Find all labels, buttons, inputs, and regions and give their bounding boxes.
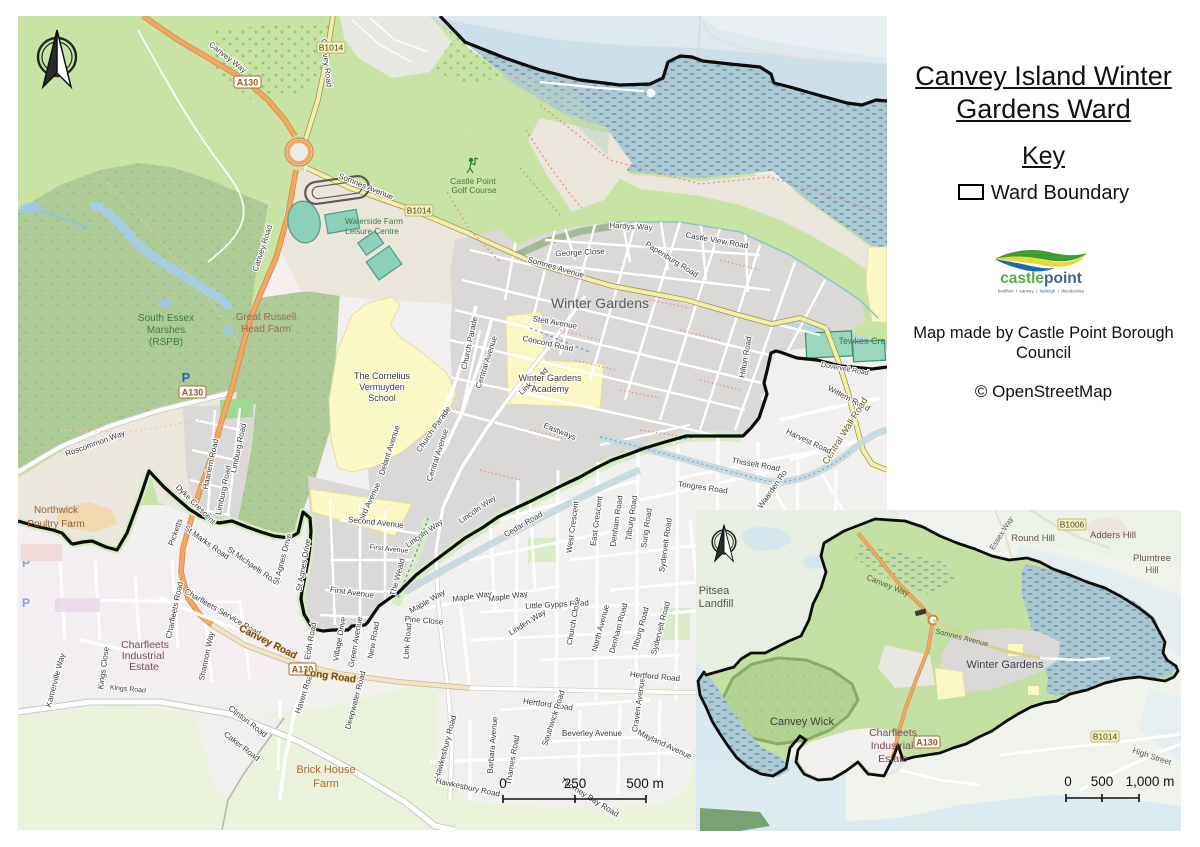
svg-text:(RSPB): (RSPB) bbox=[149, 337, 183, 348]
svg-text:Head Farm: Head Farm bbox=[241, 324, 291, 335]
svg-text:Leisure Centre: Leisure Centre bbox=[345, 227, 399, 236]
svg-text:B1006: B1006 bbox=[1060, 520, 1085, 530]
svg-text:Round Hill: Round Hill bbox=[1011, 533, 1055, 544]
svg-text:Marshes: Marshes bbox=[147, 325, 185, 336]
svg-text:Plumtree: Plumtree bbox=[1133, 553, 1171, 564]
svg-text:0: 0 bbox=[1064, 774, 1072, 789]
svg-text:Pitsea: Pitsea bbox=[699, 585, 730, 597]
svg-text:Landfill: Landfill bbox=[699, 598, 734, 610]
svg-text:B1014: B1014 bbox=[407, 206, 432, 216]
svg-text:Golf Course: Golf Course bbox=[451, 185, 497, 195]
svg-text:Beverley Avenue: Beverley Avenue bbox=[562, 729, 622, 738]
svg-text:Estate: Estate bbox=[129, 661, 159, 673]
svg-text:A130: A130 bbox=[916, 738, 938, 748]
svg-text:P: P bbox=[22, 596, 30, 610]
svg-text:P: P bbox=[182, 370, 191, 385]
svg-text:Poultry Farm: Poultry Farm bbox=[27, 519, 84, 530]
svg-text:1,000 m: 1,000 m bbox=[1126, 774, 1175, 789]
svg-text:Industrial: Industrial bbox=[871, 740, 914, 752]
svg-text:Adders Hill: Adders Hill bbox=[1090, 530, 1136, 541]
svg-text:B1014: B1014 bbox=[1093, 732, 1118, 742]
svg-text:castlepoint: castlepoint bbox=[1000, 270, 1082, 287]
svg-text:Great Russell: Great Russell bbox=[236, 312, 297, 323]
svg-text:Winter Gardens: Winter Gardens bbox=[966, 659, 1044, 671]
svg-text:Vermuyden: Vermuyden bbox=[359, 382, 405, 392]
svg-text:Charfleets: Charfleets bbox=[869, 727, 917, 739]
svg-text:benfleet I canvey I harlei: benfleet I canvey I harleigh I thundersl… bbox=[998, 289, 1085, 294]
svg-text:0: 0 bbox=[499, 776, 507, 791]
svg-text:A130: A130 bbox=[182, 388, 204, 398]
svg-text:Farm: Farm bbox=[313, 778, 339, 790]
svg-text:Canvey Wick: Canvey Wick bbox=[770, 716, 835, 728]
svg-text:Northwick: Northwick bbox=[34, 505, 79, 516]
svg-text:Estate: Estate bbox=[878, 753, 908, 765]
svg-text:South Essex: South Essex bbox=[138, 313, 194, 324]
svg-text:Winter Gardens: Winter Gardens bbox=[551, 295, 649, 311]
svg-text:500: 500 bbox=[1091, 774, 1114, 789]
svg-text:A130: A130 bbox=[237, 78, 259, 88]
svg-text:The Cornelius: The Cornelius bbox=[354, 371, 411, 381]
svg-text:B1014: B1014 bbox=[319, 43, 344, 53]
svg-text:Brick House: Brick House bbox=[296, 764, 355, 776]
svg-text:Winter Gardens: Winter Gardens bbox=[518, 373, 582, 383]
svg-text:250: 250 bbox=[564, 776, 587, 791]
svg-text:Hill: Hill bbox=[1145, 565, 1158, 576]
svg-text:Tewkes Cre: Tewkes Cre bbox=[838, 336, 885, 346]
svg-text:School: School bbox=[368, 393, 396, 403]
svg-text:Academy: Academy bbox=[531, 384, 569, 394]
svg-text:Waterside Farm: Waterside Farm bbox=[345, 217, 403, 226]
svg-text:500 m: 500 m bbox=[626, 776, 664, 791]
